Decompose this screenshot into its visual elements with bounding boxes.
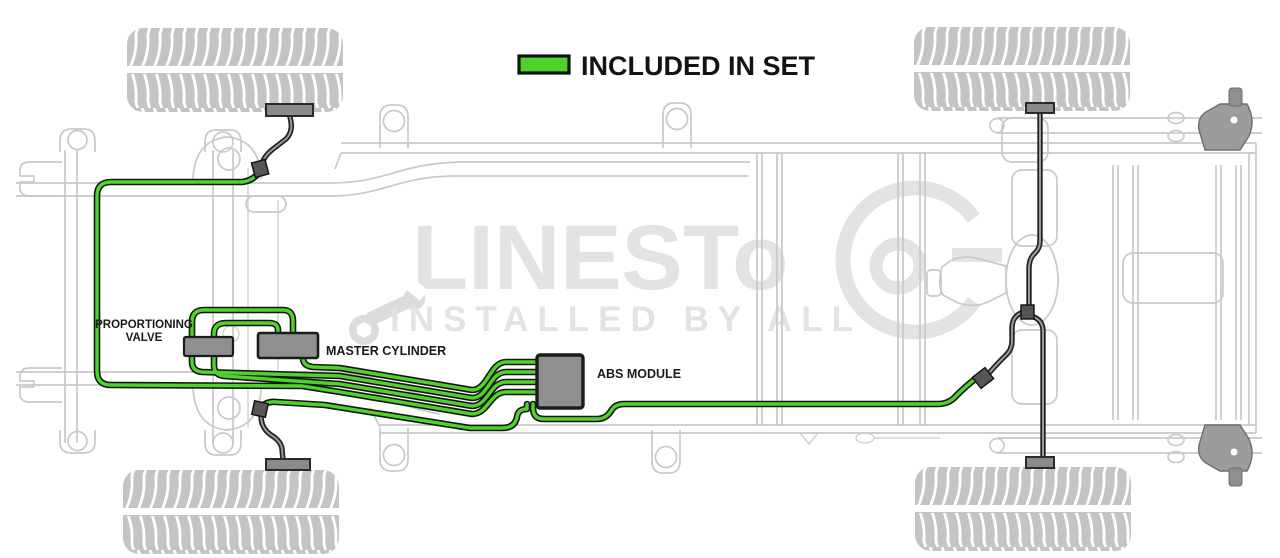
front-knuckle-bottom: [193, 388, 261, 430]
watermark: LINESTo INSTALLED BY ALL: [349, 188, 1002, 345]
proportioning-valve: [184, 337, 233, 356]
front-knuckle-top: [193, 137, 261, 179]
master-cylinder-label: MASTER CYLINDER: [326, 344, 446, 358]
legend-swatch: [519, 56, 569, 73]
watermark-brand-text: LINESTo: [412, 207, 789, 309]
wheel-fitting-front-left: [266, 104, 313, 116]
legend-label: INCLUDED IN SET: [581, 51, 816, 81]
rear-axle-junction: [1021, 305, 1034, 319]
hose-junction-front-left: [251, 159, 268, 177]
tire-front-right: [123, 470, 339, 554]
wheel-fitting-front-right: [266, 459, 310, 470]
watermark-g-bar: [952, 248, 1002, 262]
front-right-hose: [261, 416, 283, 460]
proportioning-valve-label-line1: PROPORTIONING: [95, 319, 193, 331]
rear-brake-line: [533, 380, 974, 419]
hose-junction-front-right: [252, 401, 269, 418]
abs-module: [537, 355, 583, 408]
abs-module-label: ABS MODULE: [597, 367, 681, 381]
watermark-tagline: INSTALLED BY ALL: [390, 300, 862, 339]
rear-axle-line-left: [1029, 112, 1040, 307]
master-cylinder: [258, 333, 318, 358]
diagram-svg: LINESTo INSTALLED BY ALL: [0, 0, 1280, 558]
tire-rear-right: [915, 467, 1131, 551]
proportioning-valve-label-line2: VALVE: [126, 332, 163, 344]
tow-horn-left-top: [20, 162, 62, 196]
pinion: [940, 257, 1006, 305]
tire-rear-left: [914, 27, 1130, 111]
wheel-fitting-rear-left: [1026, 103, 1054, 113]
tire-front-left: [127, 28, 343, 112]
wheel-fitting-rear-right: [1026, 457, 1054, 468]
legend: INCLUDED IN SET: [519, 51, 816, 81]
brake-line-diagram: LINESTo INSTALLED BY ALL: [0, 0, 1280, 558]
rear-axle-link-line: [989, 313, 1021, 373]
